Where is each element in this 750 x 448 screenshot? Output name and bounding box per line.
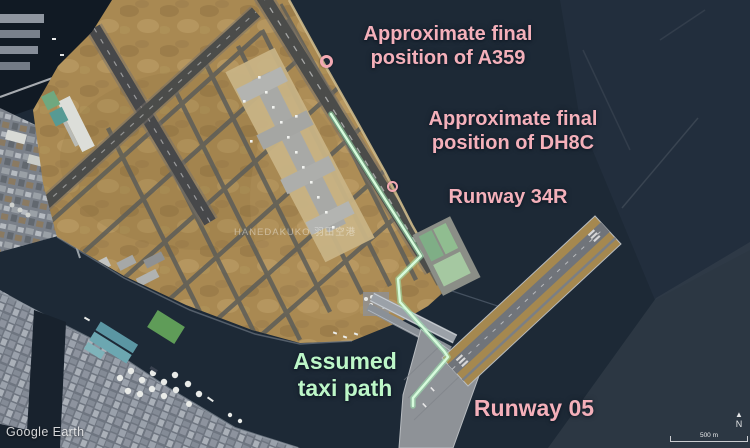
annotation-a359-line2: position of A359	[371, 47, 526, 69]
scale-bar: 500 m	[670, 436, 748, 442]
annotation-dh8c-line1: Approximate final	[429, 108, 598, 130]
annotated-satellite-map: Approximate final position of A359 Appro…	[0, 0, 750, 448]
scale-bar-label: 500 m	[670, 432, 748, 439]
annotation-taxi-line1: Assumed	[293, 348, 397, 374]
google-earth-credit: Google Earth	[6, 425, 84, 439]
annotation-taxi-line2: taxi path	[298, 375, 393, 401]
annotation-a359-line1: Approximate final	[364, 23, 533, 45]
north-arrow-icon: ▲	[730, 411, 748, 419]
north-indicator: ▲ N	[730, 411, 748, 429]
north-label: N	[730, 420, 748, 429]
annotation-runway-05: Runway 05	[468, 395, 600, 422]
annotation-runway-34r: Runway 34R	[438, 186, 578, 210]
map-watermark: HANEDAKUKO 羽田空港	[234, 224, 356, 238]
annotation-dh8c: Approximate final position of DH8C	[398, 108, 628, 155]
annotation-dh8c-line2: position of DH8C	[432, 132, 594, 154]
annotation-taxi-path: Assumed taxi path	[283, 348, 407, 402]
dh8c-final-position-marker	[387, 181, 398, 192]
a359-final-position-marker	[320, 55, 333, 68]
annotation-a359: Approximate final position of A359	[333, 23, 563, 70]
